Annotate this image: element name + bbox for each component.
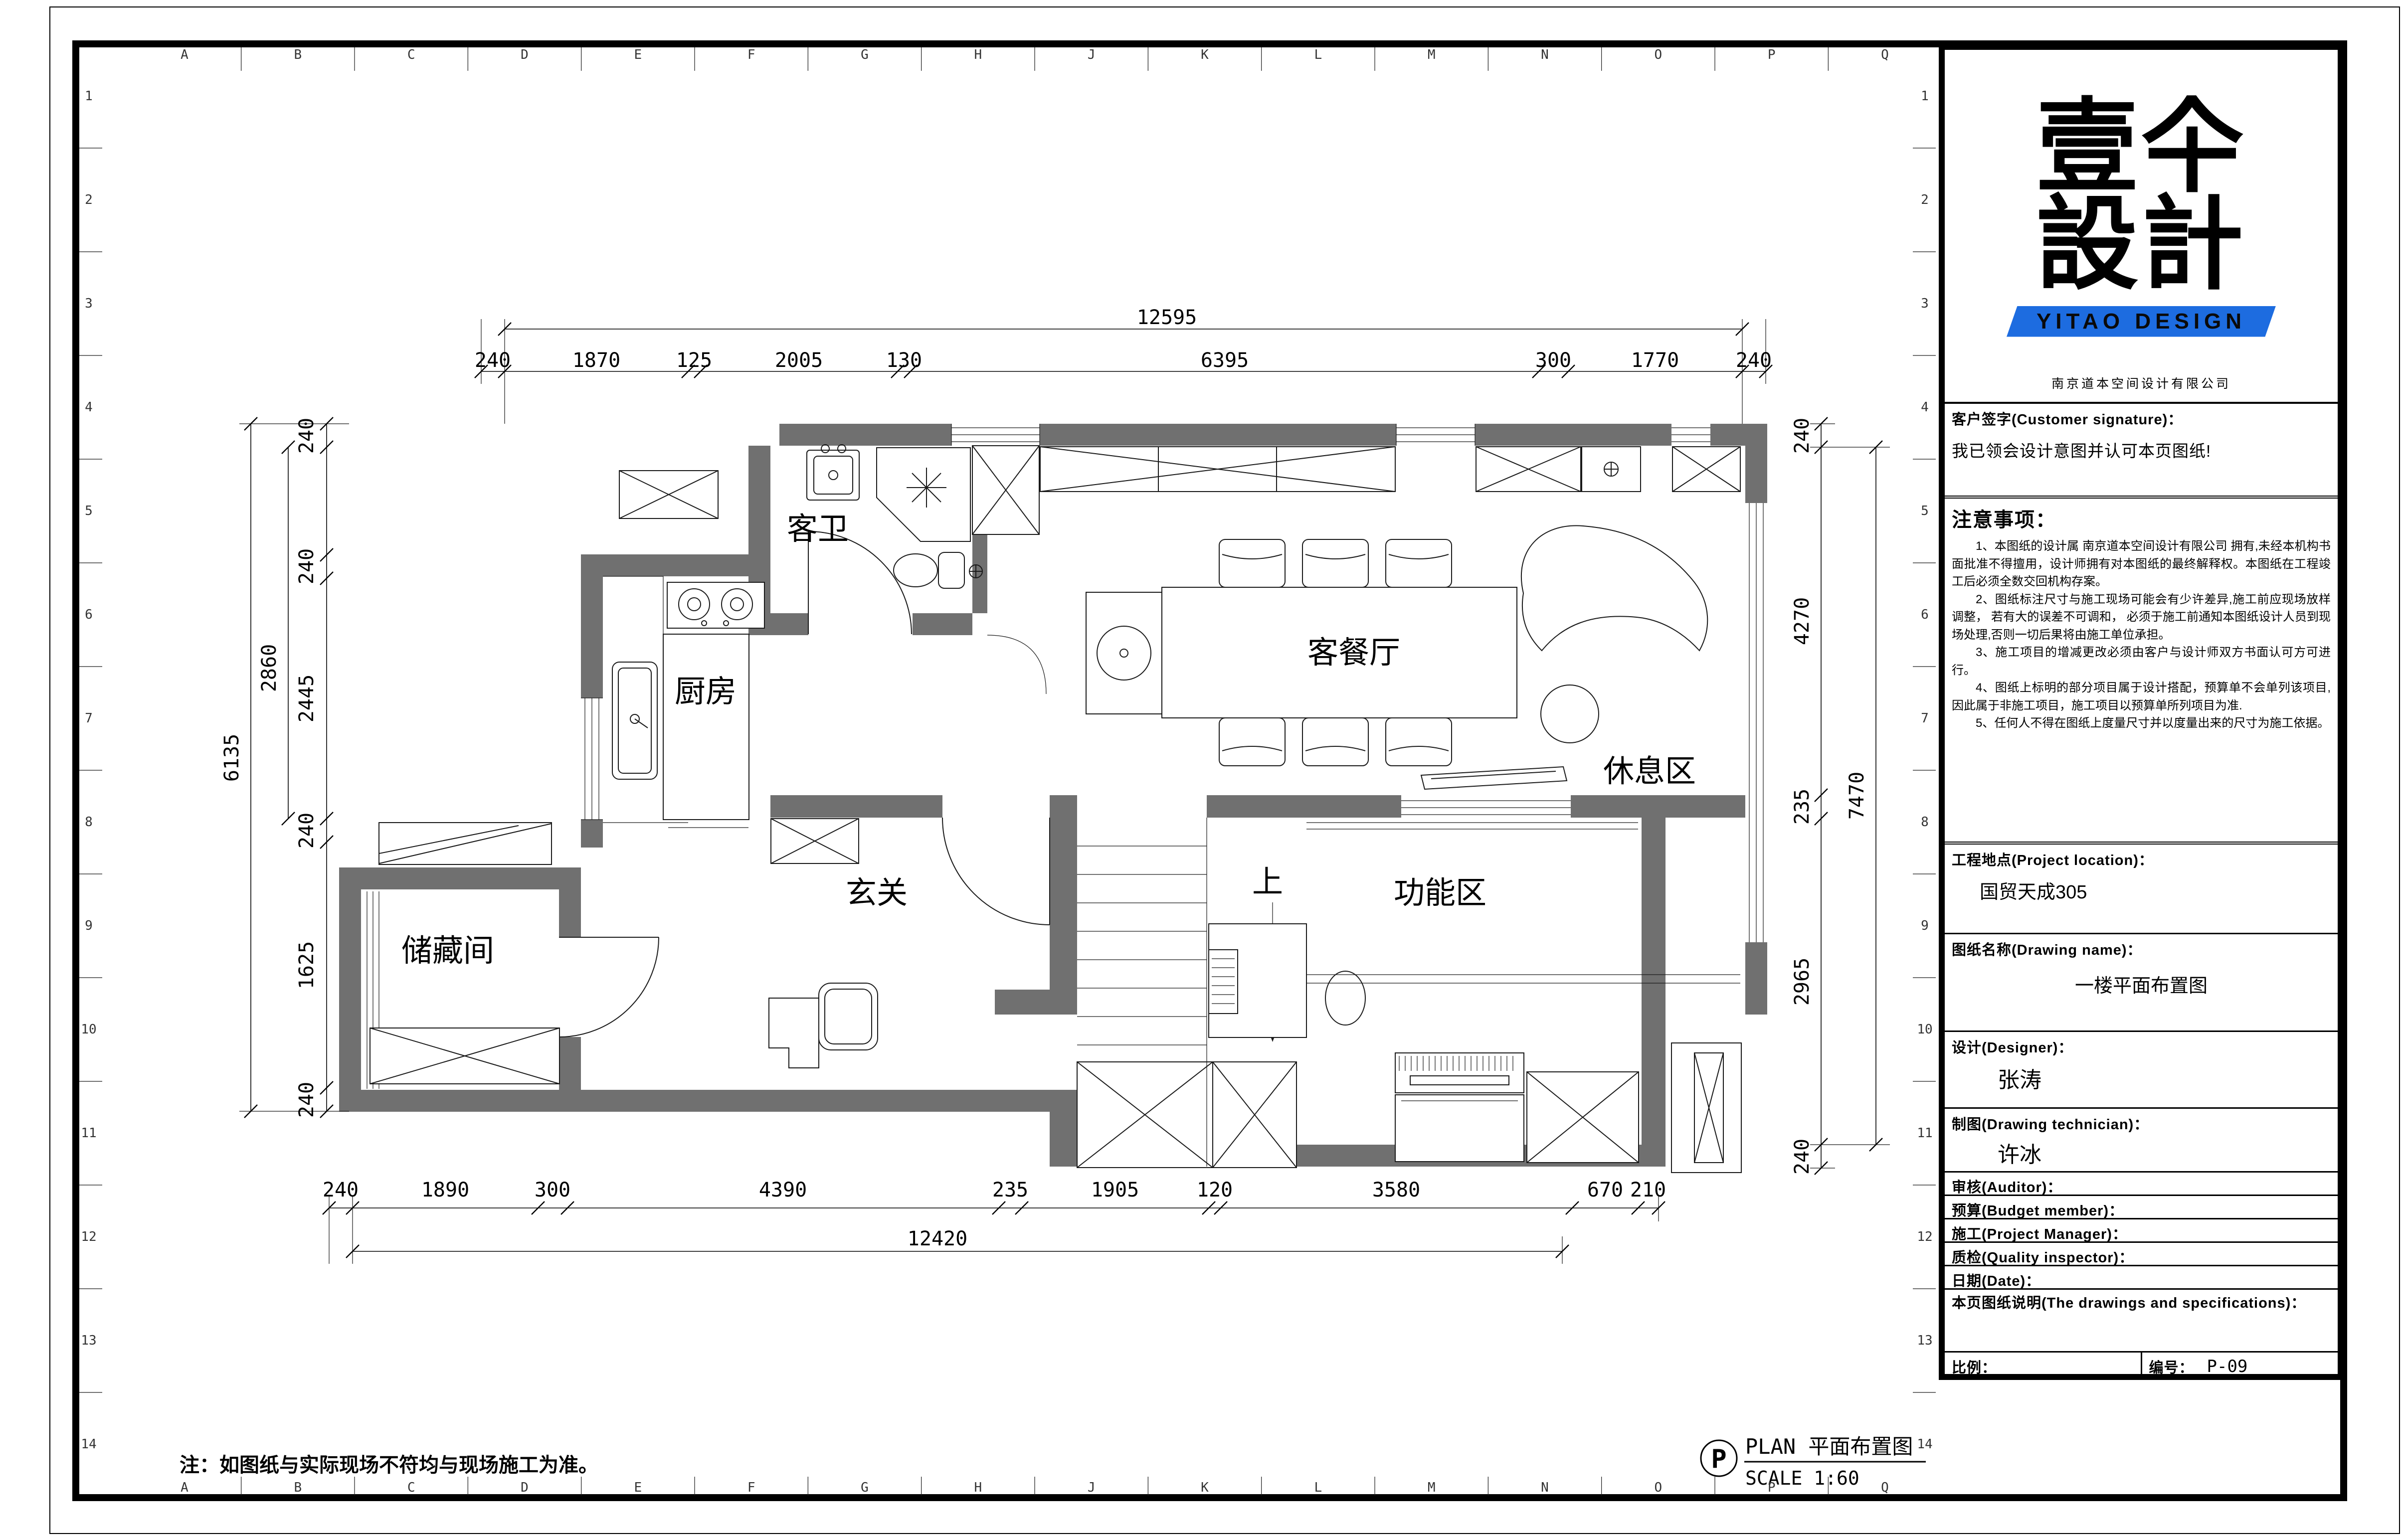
project-location-section: 工程地点(Project location)： 国贸天成305 xyxy=(1945,845,2338,934)
notes-section: 注意事项： 1、本图纸的设计属 南京道本空间设计有限公司 拥有,未经本机构书面批… xyxy=(1945,499,2338,845)
scale-cell: 比例： xyxy=(1945,1353,2141,1380)
dimension-label: 240 xyxy=(323,1179,359,1201)
quality-inspector-section: 质检(Quality inspector)： xyxy=(1945,1243,2338,1266)
caption-symbol: P xyxy=(1711,1444,1726,1474)
note-item: 2、图纸标注尺寸与施工现场可能会有少许差异,施工前应现场放样调整， 若有大的误差… xyxy=(1952,591,2331,644)
note-item: 3、施工项目的增减更改必须由客户与设计师双方书面认可方可进行。 xyxy=(1952,644,2331,679)
function-piano-unit xyxy=(1395,1053,1524,1093)
signature-body: 我已领会设计意图并认可本页图纸! xyxy=(1952,438,2331,462)
dimension-label: 1770 xyxy=(1631,349,1679,372)
dimension-label: 1890 xyxy=(421,1179,469,1201)
dining-chairs-top xyxy=(1219,539,1452,587)
window-top-2 xyxy=(1396,424,1475,446)
grid-number-left: 3 xyxy=(85,296,93,311)
furniture-layer xyxy=(559,445,1707,1167)
grid-letter-bottom: H xyxy=(974,1480,982,1495)
hall-cabinet xyxy=(771,819,859,863)
technician-label: 制图(Drawing technician)： xyxy=(1952,1113,2331,1134)
date-section: 日期(Date)： xyxy=(1945,1266,2338,1290)
designer-section: 设计(Designer)： 张涛 xyxy=(1945,1032,2338,1109)
note-item: 1、本图纸的设计属 南京道本空间设计有限公司 拥有,未经本机构书面批准不得擅用，… xyxy=(1952,537,2331,591)
grid-number-right: 3 xyxy=(1921,296,1929,311)
dimension-label: 4270 xyxy=(1791,597,1814,645)
kitchen-slide-door xyxy=(603,823,748,828)
serial-cell: 编号： P-09 xyxy=(2141,1353,2338,1380)
project-manager-section: 施工(Project Manager)： xyxy=(1945,1219,2338,1243)
grid-letter-top: A xyxy=(181,47,188,62)
grid-number-right: 5 xyxy=(1921,504,1929,518)
grid-number-right: 7 xyxy=(1921,711,1929,726)
grid-letter-top: D xyxy=(521,47,529,62)
grid-letter-top: E xyxy=(634,47,642,62)
kitchen-stove xyxy=(667,582,764,628)
grid-letter-top: C xyxy=(407,47,415,62)
grid-number-left: 2 xyxy=(85,192,93,207)
grid-letter-top: F xyxy=(747,47,755,62)
cabinet-top-row xyxy=(1040,447,1395,492)
window-top-1 xyxy=(951,424,1040,446)
date-label: 日期(Date)： xyxy=(1952,1269,2331,1290)
grid-number-left: 10 xyxy=(81,1022,96,1037)
dimension-label: 2860 xyxy=(258,644,281,692)
grid-number-left: 11 xyxy=(81,1126,96,1141)
grid-letter-bottom: F xyxy=(747,1480,755,1495)
drawing-name-label: 图纸名称(Drawing name)： xyxy=(1952,938,2331,959)
note-item: 4、图纸上标明的部分项目属于设计搭配，预算单不会单列该项目,因此属于非施工项目，… xyxy=(1952,679,2331,714)
grid-letter-bottom: D xyxy=(521,1480,529,1495)
drawing-name-value: 一楼平面布置图 xyxy=(1952,970,2331,998)
dimension-label: 12595 xyxy=(1137,306,1197,329)
storage-door xyxy=(559,937,659,1037)
grid-letter-bottom: A xyxy=(181,1480,188,1495)
room-label-function: 功能区 xyxy=(1394,874,1486,911)
dimension-label: 240 xyxy=(1791,1139,1814,1175)
sheet-note: 注：如图纸与实际现场不符均与现场施工为准。 xyxy=(180,1454,598,1476)
window-kitchen-west xyxy=(581,698,603,820)
dimension-label: 1625 xyxy=(295,941,318,989)
grid-letter-bottom: L xyxy=(1314,1480,1322,1495)
company-name: 南京道本空间设计有限公司 xyxy=(1952,374,2331,392)
grid-letter-top: L xyxy=(1314,47,1322,62)
opening-sill xyxy=(1401,801,1571,815)
cabinet-tall-left xyxy=(972,446,1039,534)
dimension-label: 120 xyxy=(1197,1179,1233,1201)
dimension-label: 2965 xyxy=(1791,958,1814,1006)
dimension-label: 240 xyxy=(1791,418,1814,454)
room-label-storage: 储藏间 xyxy=(401,932,494,969)
stair-up-label: 上 xyxy=(1252,863,1283,900)
room-label-bath: 客卫 xyxy=(787,511,849,547)
grid-letter-bottom: N xyxy=(1541,1480,1549,1495)
location-label: 工程地点(Project location)： xyxy=(1952,849,2331,869)
grid-number-left: 9 xyxy=(85,918,93,933)
note-item: 5、任何人不得在图纸上度量尺寸并以度量出来的尺寸为施工依据。 xyxy=(1952,714,2331,732)
grid-letter-bottom: J xyxy=(1088,1480,1096,1495)
grid-letter-bottom: C xyxy=(407,1480,415,1495)
bath-corner-fillet xyxy=(987,635,1046,694)
dimension-label: 125 xyxy=(676,349,712,372)
grid-letter-top: B xyxy=(294,47,302,62)
serial-label: 编号： xyxy=(2149,1356,2194,1377)
grid-letter-top: J xyxy=(1088,47,1096,62)
grid-letter-bottom: P xyxy=(1768,1480,1776,1495)
grid-letter-top: N xyxy=(1541,47,1549,62)
grid-letter-bottom: E xyxy=(634,1480,642,1495)
grid-number-right: 11 xyxy=(1917,1126,1932,1141)
grid-number-left: 12 xyxy=(81,1229,96,1244)
description-label: 本页图纸说明(The drawings and specifications)： xyxy=(1952,1294,2331,1313)
technician-section: 制图(Drawing technician)： 许冰 xyxy=(1945,1109,2338,1173)
grid-number-right: 1 xyxy=(1921,89,1929,104)
function-shelf xyxy=(1306,823,1638,829)
grid-number-right: 2 xyxy=(1921,192,1929,207)
scale-serial-row: 比例： 编号： P-09 xyxy=(1945,1353,2338,1380)
tv-console xyxy=(1421,767,1567,789)
grid-letter-top: M xyxy=(1428,47,1436,62)
kitchen-sink xyxy=(612,662,657,779)
dimension-label: 2445 xyxy=(295,675,318,722)
bay-column xyxy=(1671,1043,1741,1173)
dimension-label: 240 xyxy=(475,349,511,372)
dimension-label: 7470 xyxy=(1846,772,1868,820)
grid-letter-bottom: Q xyxy=(1881,1480,1889,1495)
room-label-kitchen: 厨房 xyxy=(675,673,737,709)
dimension-label: 240 xyxy=(295,1082,318,1118)
dimension-label: 300 xyxy=(535,1179,570,1201)
dimension-label: 240 xyxy=(295,418,318,454)
logo-char: 設 xyxy=(2036,184,2141,304)
window-top-3 xyxy=(1671,428,1710,442)
designer-value: 张涛 xyxy=(1998,1062,2331,1094)
grid-letter-bottom: K xyxy=(1201,1480,1209,1495)
grid-number-right: 14 xyxy=(1917,1437,1932,1452)
grid-number-right: 4 xyxy=(1921,400,1929,415)
project-manager-label: 施工(Project Manager)： xyxy=(1952,1222,2331,1243)
room-label-living: 客餐厅 xyxy=(1307,634,1400,671)
dimension-label: 6395 xyxy=(1201,349,1249,372)
grid-letter-bottom: B xyxy=(294,1480,302,1495)
grid-number-left: 14 xyxy=(81,1437,96,1452)
dimension-label: 235 xyxy=(1791,789,1814,825)
designer-label: 设计(Designer)： xyxy=(1952,1036,2331,1057)
dimension-label: 4390 xyxy=(759,1179,807,1201)
function-cabinet-x xyxy=(1527,1072,1639,1163)
dimension-label: 240 xyxy=(295,813,318,849)
dimension-label: 210 xyxy=(1630,1179,1666,1201)
cabinet-top-right xyxy=(1476,447,1581,492)
stair-landing-x2 xyxy=(1213,1062,1296,1168)
dining-chairs-bottom xyxy=(1219,718,1452,766)
cabinet-small xyxy=(1582,447,1641,492)
grid-number-right: 10 xyxy=(1917,1022,1932,1037)
plan-caption: P PLAN 平面布置图 SCALE 1:60 xyxy=(1701,1434,1926,1489)
grid-letter-top: O xyxy=(1655,47,1663,62)
dimension-label: 130 xyxy=(886,349,922,372)
drawing-name-section: 图纸名称(Drawing name)： 一楼平面布置图 xyxy=(1945,934,2338,1032)
function-low-cabinet xyxy=(1395,1095,1524,1162)
dimension-label: 3580 xyxy=(1372,1179,1420,1201)
grid-number-left: 4 xyxy=(85,400,93,415)
window-seat xyxy=(1672,447,1740,492)
budget-section: 预算(Budget member)： xyxy=(1945,1196,2338,1219)
serial-value: P-09 xyxy=(2207,1357,2248,1376)
grid-number-left: 13 xyxy=(81,1333,96,1348)
grid-number-right: 12 xyxy=(1917,1229,1932,1244)
grid-number-left: 6 xyxy=(85,607,93,622)
customer-signature-section: 客户签字(Customer signature)： 我已领会设计意图并认可本页图… xyxy=(1945,404,2338,499)
logo-char: 計 xyxy=(2141,184,2246,304)
dimension-label: 300 xyxy=(1535,349,1571,372)
budget-label: 预算(Budget member)： xyxy=(1952,1199,2331,1219)
storage-cabinet xyxy=(370,1028,559,1084)
scale-label: 比例： xyxy=(1952,1356,1997,1377)
dimension-label: 1870 xyxy=(572,349,620,372)
function-desk xyxy=(1209,924,1306,1037)
grid-letter-top: P xyxy=(1768,47,1776,62)
company-logo: 壹仐 設計 YITAO DESIGN 南京道本空间设计有限公司 xyxy=(1945,50,2338,404)
dimension-label: 6135 xyxy=(220,734,243,782)
notes-title: 注意事项： xyxy=(1952,504,2331,532)
grid-letter-top: Q xyxy=(1881,47,1889,62)
drawing-sheet: 1259524018701252005130639530017702401242… xyxy=(0,0,2406,1540)
kitchen-island xyxy=(663,634,749,820)
caption-title: PLAN 平面布置图 xyxy=(1745,1434,1913,1459)
technician-value: 许冰 xyxy=(1998,1137,2331,1169)
bath-toilet xyxy=(894,552,982,588)
grid-number-left: 1 xyxy=(85,89,93,104)
quality-inspector-label: 质检(Quality inspector)： xyxy=(1952,1246,2331,1266)
caption-scale: SCALE 1:60 xyxy=(1745,1467,1859,1489)
grid-letter-top: G xyxy=(861,47,869,62)
window-east-balcony xyxy=(1749,503,1763,942)
drawing-description-section: 本页图纸说明(The drawings and specifications)： xyxy=(1945,1290,2338,1353)
grid-letter-top: H xyxy=(974,47,982,62)
room-label-entry: 玄关 xyxy=(846,874,908,911)
grid-number-left: 8 xyxy=(85,815,93,830)
grid-letter-bottom: O xyxy=(1655,1480,1663,1495)
signature-label: 客户签字(Customer signature)： xyxy=(1952,408,2331,429)
bath-sink xyxy=(807,445,859,500)
entry-living-door xyxy=(942,818,1050,925)
grid-number-right: 8 xyxy=(1921,815,1929,830)
dimension-label: 1905 xyxy=(1091,1179,1139,1201)
logo-banner: YITAO DESIGN xyxy=(2007,306,2276,337)
shoe-cabinet xyxy=(379,823,552,864)
dimension-label: 670 xyxy=(1587,1179,1623,1201)
grid-number-right: 9 xyxy=(1921,918,1929,933)
dimension-label: 12420 xyxy=(908,1227,967,1250)
dimension-label: 235 xyxy=(992,1179,1028,1201)
kitchen-high-cabinet xyxy=(619,471,718,518)
grid-letter-bottom: G xyxy=(861,1480,869,1495)
grid-number-left: 7 xyxy=(85,711,93,726)
rest-round-table xyxy=(1541,685,1599,743)
function-stool xyxy=(1325,971,1365,1025)
bath-shower xyxy=(877,448,970,541)
auditor-label: 审核(Auditor)： xyxy=(1952,1176,2331,1196)
grid-letter-top: K xyxy=(1201,47,1209,62)
grid-number-left: 5 xyxy=(85,504,93,518)
logo-banner-text: YITAO DESIGN xyxy=(2036,309,2246,334)
title-block: 壹仐 設計 YITAO DESIGN 南京道本空间设计有限公司 客户签字(Cus… xyxy=(1939,44,2344,1380)
grid-letter-bottom: M xyxy=(1428,1480,1436,1495)
stair-landing-x1 xyxy=(1077,1062,1213,1168)
dimension-label: 240 xyxy=(1736,349,1772,372)
rest-sofa xyxy=(1521,525,1707,651)
location-value: 国贸天成305 xyxy=(1980,876,2331,904)
dining-side-cabinet xyxy=(1086,592,1162,714)
grid-number-right: 13 xyxy=(1917,1333,1932,1348)
grid-number-right: 6 xyxy=(1921,607,1929,622)
auditor-section: 审核(Auditor)： xyxy=(1945,1173,2338,1196)
dimension-label: 240 xyxy=(295,548,318,584)
entry-console xyxy=(769,983,878,1068)
room-label-rest: 休息区 xyxy=(1603,753,1696,789)
dimension-label: 2005 xyxy=(775,349,823,372)
